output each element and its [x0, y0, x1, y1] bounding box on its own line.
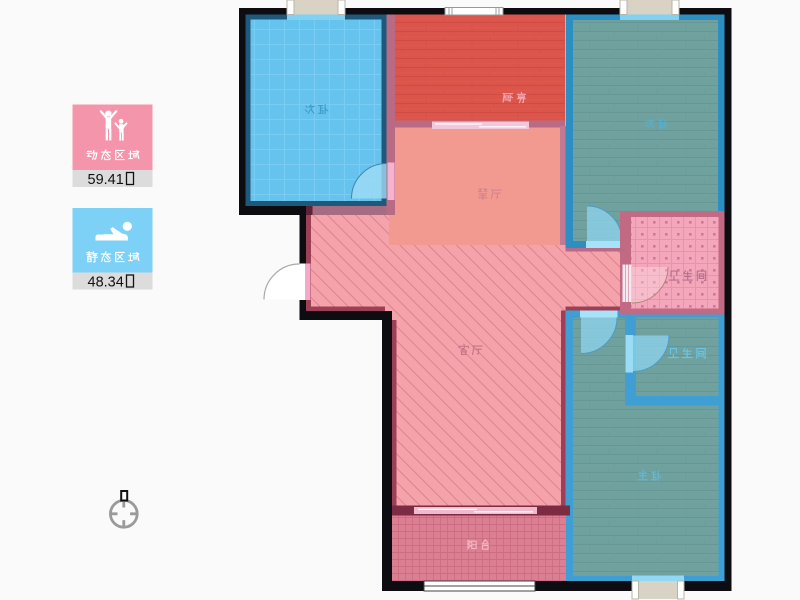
svg-text:59.41: 59.41: [88, 172, 124, 188]
svg-text:48.34: 48.34: [88, 275, 124, 291]
